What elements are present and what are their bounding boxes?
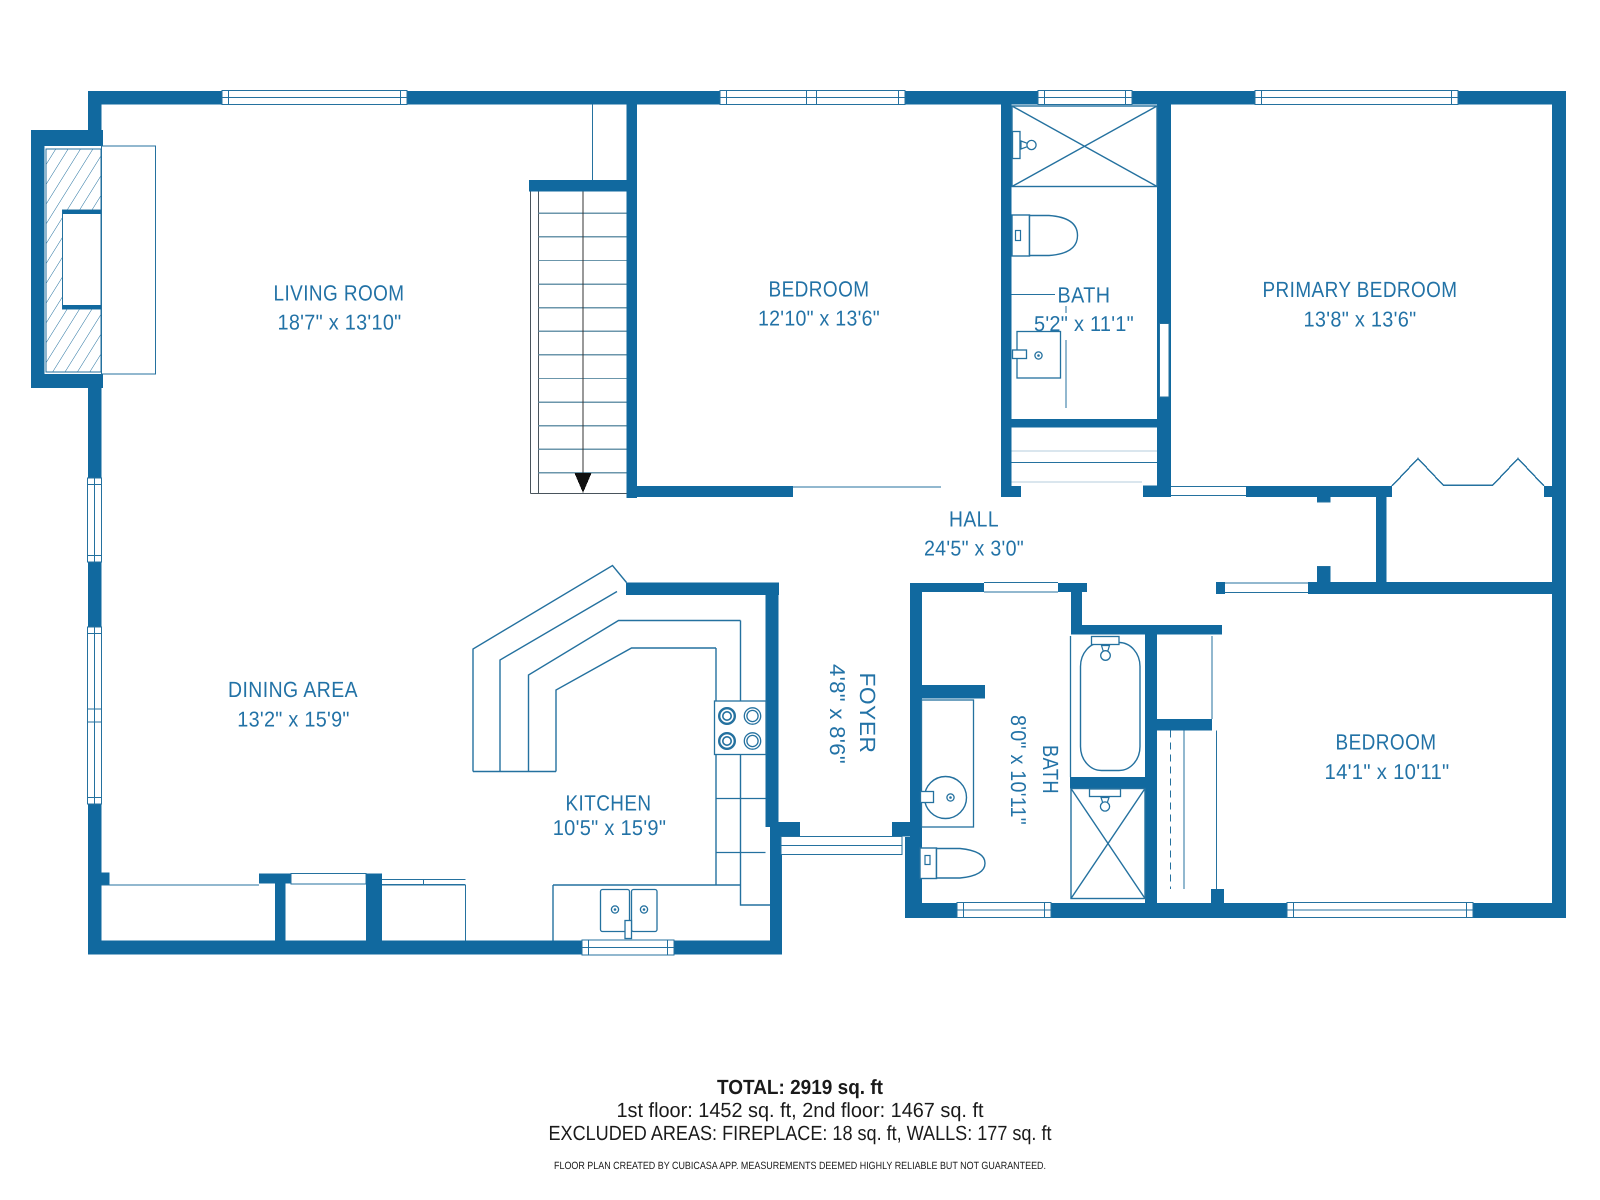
- svg-text:DINING AREA: DINING AREA: [228, 677, 358, 702]
- svg-text:PRIMARY BEDROOM: PRIMARY BEDROOM: [1263, 277, 1458, 302]
- svg-text:18'7" x 13'10": 18'7" x 13'10": [278, 311, 402, 335]
- svg-text:13'8" x 13'6": 13'8" x 13'6": [1304, 308, 1417, 332]
- svg-text:BEDROOM: BEDROOM: [769, 277, 870, 302]
- svg-text:8'0" x 10'11": 8'0" x 10'11": [1006, 715, 1030, 825]
- svg-text:BATH: BATH: [1058, 283, 1111, 308]
- svg-text:BEDROOM: BEDROOM: [1336, 730, 1437, 755]
- svg-text:TOTAL: 2919 sq. ft: TOTAL: 2919 sq. ft: [717, 1076, 883, 1099]
- svg-text:4'8" x 8'6": 4'8" x 8'6": [825, 664, 849, 764]
- svg-text:LIVING ROOM: LIVING ROOM: [274, 281, 405, 306]
- svg-text:BATH: BATH: [1038, 745, 1063, 794]
- svg-text:10'5" x 15'9": 10'5" x 15'9": [553, 816, 667, 840]
- svg-text:1st floor: 1452 sq. ft, 2nd fl: 1st floor: 1452 sq. ft, 2nd floor: 1467 …: [617, 1099, 984, 1122]
- svg-text:24'5" x 3'0": 24'5" x 3'0": [924, 537, 1024, 561]
- svg-text:5'2" x 11'1": 5'2" x 11'1": [1034, 312, 1134, 336]
- svg-text:FOYER: FOYER: [855, 673, 880, 754]
- svg-text:FLOOR PLAN CREATED BY CUBICASA: FLOOR PLAN CREATED BY CUBICASA APP. MEAS…: [554, 1160, 1046, 1172]
- svg-text:KITCHEN: KITCHEN: [566, 791, 652, 816]
- svg-text:12'10" x 13'6": 12'10" x 13'6": [758, 307, 880, 331]
- svg-text:14'1" x 10'11": 14'1" x 10'11": [1325, 760, 1450, 784]
- svg-text:HALL: HALL: [949, 507, 999, 532]
- svg-text:EXCLUDED AREAS: FIREPLACE: 18: EXCLUDED AREAS: FIREPLACE: 18 sq. ft, WA…: [549, 1122, 1052, 1145]
- svg-text:13'2" x 15'9": 13'2" x 15'9": [237, 708, 350, 732]
